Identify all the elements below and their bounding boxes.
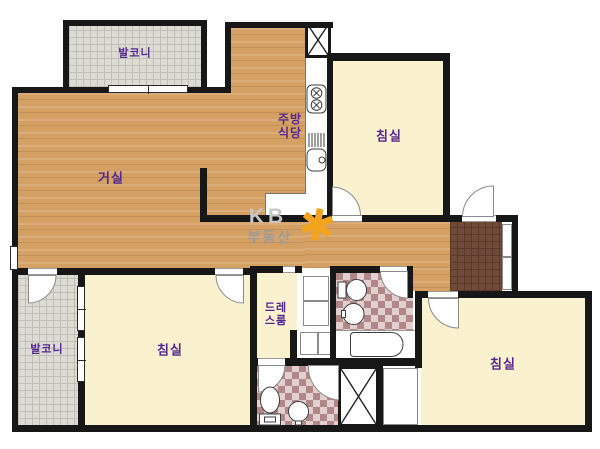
wall [512,217,518,293]
wall [63,20,69,90]
wall [12,87,112,93]
bathtub-icon [349,331,411,358]
wall [295,266,302,273]
wall [200,168,207,222]
wall [377,366,383,426]
wall [201,20,207,90]
door-opening [428,291,458,298]
wall [330,271,336,361]
duct-x-icon [341,369,376,424]
wall [78,275,85,286]
label-bedroom-bottom-left: 침실 [157,342,183,357]
wall [250,272,257,426]
hallway-floor-lower [413,268,450,291]
wall [458,291,592,298]
stove-icon [306,84,327,114]
wall [443,53,450,222]
door-arc-master-bath [380,271,408,299]
toilet-icon [258,386,282,427]
wall [12,87,18,246]
label-balcony-bottom: 발코니 [30,344,63,357]
duct-x-icon [308,25,328,55]
wall [330,266,380,273]
closet-panel [303,301,329,326]
watermark-brand: KB [249,205,287,229]
wall [290,330,297,358]
watermark-sub: 부동산 [248,227,293,247]
label-living-room: 거실 [98,170,124,185]
door-opening [28,268,57,275]
label-bedroom-bottom-right: 침실 [490,356,516,371]
kitchen-sink-icon [306,148,327,172]
wall [250,358,258,366]
window [10,246,18,270]
closet-panel [303,276,329,301]
shoe-cabinet [502,257,512,290]
door-arc-bedroom-bottom-right [428,298,459,329]
door-arc-balcony-bottom [28,275,57,304]
kitchen-wood-floor [231,28,305,93]
wall [225,22,333,28]
wall [78,382,85,427]
wall [415,291,422,368]
wall [225,22,231,93]
wall [186,87,231,93]
closet-panel [300,332,318,355]
wall [327,53,450,61]
door-opening [283,266,295,273]
washbasin-icon [287,400,310,426]
wall [57,268,215,275]
window [108,85,188,93]
dish-rack-icon [307,133,325,147]
wall [12,269,18,432]
built-in-closet [383,368,418,425]
label-dress-room: 드레 스룸 [265,302,287,328]
duct-shaft [338,366,379,427]
door-arc-bedroom-bottom-left [215,275,244,304]
wall [285,358,422,366]
door-arc-front-entrance [462,185,494,217]
shoe-cabinet [502,224,512,257]
shower-screen-arc [308,365,339,401]
wall [12,425,592,432]
label-kitchen-dining: 주방 식당 [278,112,302,140]
wall [63,20,207,26]
door-opening [215,268,243,275]
washbasin-icon [341,302,365,326]
window [77,337,85,382]
entry-tile-floor [450,222,502,291]
wall [250,266,283,273]
label-balcony-top: 발코니 [118,48,151,61]
toilet-icon [337,278,368,302]
window [77,286,85,331]
wall [585,291,592,432]
label-bedroom-top-right: 침실 [376,128,402,143]
floor-plan: 발코니 거실 주방 식당 침실 발코니 침실 드레 스룸 침실 KB 부동산 ✱ [0,0,600,449]
